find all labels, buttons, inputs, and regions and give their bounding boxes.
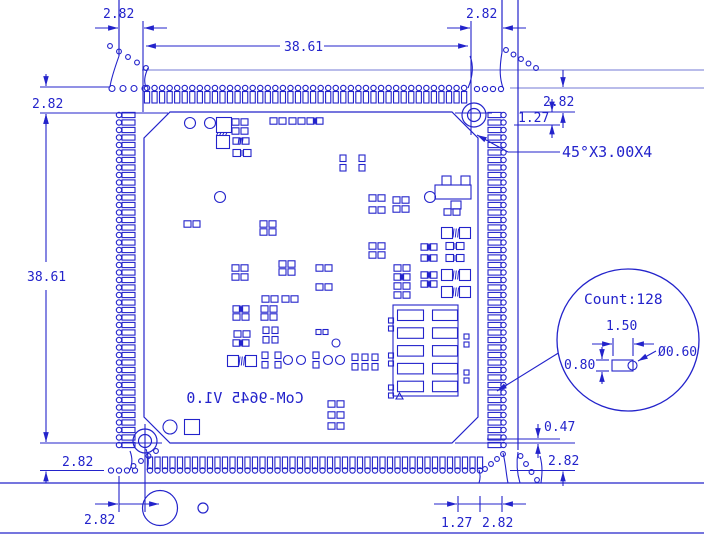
dim-top-left-offset: 2.82 bbox=[95, 7, 167, 112]
component-p bbox=[261, 314, 277, 320]
component-c bbox=[185, 118, 196, 129]
component-p bbox=[234, 331, 250, 337]
svg-text:1.27: 1.27 bbox=[441, 516, 472, 531]
svg-text:2.82: 2.82 bbox=[62, 455, 93, 470]
component-sq bbox=[217, 118, 232, 133]
component-p bbox=[232, 265, 248, 271]
component-pm bbox=[421, 244, 437, 250]
detail-bubble: Count:128 1.50 0.80 Ø0.60 bbox=[497, 269, 699, 411]
component-pv bbox=[275, 352, 281, 368]
component-pv bbox=[340, 155, 346, 171]
component-PH bbox=[442, 228, 471, 239]
board-title-text: CoM-9645 V1.0 bbox=[186, 389, 303, 407]
component-pv bbox=[362, 354, 368, 370]
component-pv bbox=[313, 352, 319, 368]
component-c bbox=[205, 118, 216, 129]
mouse-bite-row bbox=[108, 44, 149, 71]
svg-text:2.82: 2.82 bbox=[466, 7, 497, 22]
pad-row-right bbox=[488, 112, 506, 447]
component-p bbox=[316, 284, 332, 290]
component-pm bbox=[421, 281, 437, 287]
svg-text:2.82: 2.82 bbox=[84, 513, 115, 528]
svg-text:0.47: 0.47 bbox=[544, 420, 575, 435]
pad-row-top bbox=[144, 85, 467, 103]
component-PH bbox=[442, 270, 471, 281]
panel-rails-strong bbox=[0, 0, 704, 533]
component-p bbox=[328, 412, 344, 418]
component-p bbox=[316, 265, 332, 271]
component-c bbox=[324, 356, 333, 365]
component-pb bbox=[446, 243, 464, 250]
dim-bottom-pitch-and-tab: 1.27 2.82 bbox=[434, 496, 526, 531]
component-pm bbox=[233, 306, 249, 312]
component-p bbox=[233, 314, 249, 320]
component-c bbox=[163, 420, 177, 434]
svg-text:1.27: 1.27 bbox=[518, 111, 549, 126]
dimensions: 2.82 38.61 2.82 bbox=[27, 7, 652, 531]
component-p bbox=[394, 283, 410, 289]
component-pv bbox=[272, 327, 278, 343]
mouse-bite-row bbox=[474, 86, 503, 91]
svg-text:2.82: 2.82 bbox=[543, 95, 574, 110]
component-c bbox=[297, 356, 306, 365]
component-p bbox=[328, 423, 344, 429]
component-sq bbox=[217, 136, 230, 149]
pad-count-label: Count:128 bbox=[584, 292, 663, 308]
bubble-leader bbox=[497, 352, 560, 391]
component-p bbox=[232, 274, 248, 280]
dim-left-top-offset: 2.82 bbox=[32, 74, 63, 126]
pad-rows bbox=[116, 85, 506, 473]
component-conn bbox=[389, 305, 470, 399]
component-pm bbox=[307, 118, 323, 124]
bubble-circle bbox=[557, 269, 699, 411]
pad-length-label: 1.50 bbox=[606, 319, 637, 334]
component-p bbox=[328, 401, 344, 407]
component-p bbox=[394, 265, 410, 271]
component-ph bbox=[233, 138, 249, 144]
mouse-bite-row bbox=[483, 452, 506, 472]
pad-row-left bbox=[116, 112, 135, 447]
svg-text:2.82: 2.82 bbox=[548, 454, 579, 469]
component-p bbox=[260, 229, 276, 235]
component-pv bbox=[263, 327, 269, 343]
component-p bbox=[260, 221, 276, 227]
component-p bbox=[289, 118, 305, 124]
tooling-hole-large bbox=[143, 491, 178, 526]
component-p bbox=[232, 119, 248, 125]
component-p bbox=[279, 269, 295, 275]
mounting-hole-top-right bbox=[462, 103, 486, 127]
component-p bbox=[261, 306, 277, 312]
tooling-hole-small bbox=[198, 503, 208, 513]
component-pv bbox=[352, 354, 358, 370]
component-p bbox=[393, 206, 409, 212]
component-c bbox=[215, 192, 226, 203]
component-sp bbox=[316, 330, 328, 335]
component-pv bbox=[372, 354, 378, 370]
mouse-bites bbox=[108, 44, 540, 483]
component-p bbox=[282, 296, 298, 302]
component-pb bbox=[446, 255, 464, 262]
component-p bbox=[232, 128, 248, 134]
component-p bbox=[270, 118, 286, 124]
component-c bbox=[425, 192, 436, 203]
components bbox=[163, 118, 471, 435]
pcb-panel-drawing: CoM-9645 V1.0 2.82 38.61 2.82 bbox=[0, 0, 704, 540]
component-pv bbox=[359, 155, 365, 171]
mouse-bite-row bbox=[518, 454, 539, 483]
component-p bbox=[394, 292, 410, 298]
component-p bbox=[369, 243, 385, 249]
component-p bbox=[369, 252, 385, 258]
svg-text:2.82: 2.82 bbox=[103, 7, 134, 22]
pad-row-bottom bbox=[147, 457, 482, 473]
svg-text:38.61: 38.61 bbox=[27, 270, 66, 285]
dim-left-bottom-offset: 2.82 bbox=[46, 455, 93, 483]
svg-text:2.82: 2.82 bbox=[32, 97, 63, 112]
component-PH bbox=[228, 356, 257, 367]
component-p bbox=[369, 195, 385, 201]
component-pv bbox=[262, 352, 268, 368]
mouse-bite-row bbox=[109, 86, 148, 92]
component-p bbox=[262, 296, 278, 302]
component-x bbox=[435, 176, 471, 209]
component-c bbox=[332, 339, 340, 347]
dim-left-span: 38.61 bbox=[27, 114, 66, 442]
component-sq bbox=[185, 420, 200, 435]
component-c bbox=[284, 356, 293, 365]
panel-rails bbox=[142, 70, 704, 88]
svg-text:45°X3.00X4: 45°X3.00X4 bbox=[562, 143, 652, 161]
component-pm bbox=[421, 255, 437, 261]
drawing-canvas: CoM-9645 V1.0 2.82 38.61 2.82 bbox=[0, 0, 704, 540]
component-p bbox=[279, 261, 295, 267]
component-p bbox=[369, 207, 385, 213]
board-title-mirrored: CoM-9645 V1.0 bbox=[186, 389, 303, 407]
component-p bbox=[184, 221, 200, 227]
component-PH bbox=[442, 287, 471, 298]
svg-text:38.61: 38.61 bbox=[284, 40, 323, 55]
component-pm bbox=[233, 340, 249, 346]
component-pm bbox=[394, 274, 410, 280]
component-c bbox=[336, 356, 345, 365]
component-p bbox=[444, 209, 460, 215]
hole-diameter-label: Ø0.60 bbox=[658, 345, 697, 360]
pad-width-label: 0.80 bbox=[564, 358, 595, 373]
component-p bbox=[393, 197, 409, 203]
svg-text:2.82: 2.82 bbox=[482, 516, 513, 531]
component-pm bbox=[421, 272, 437, 278]
mouse-bite-row bbox=[504, 48, 539, 71]
dim-top-right-offset: 2.82 bbox=[447, 7, 526, 28]
component-pb bbox=[233, 150, 251, 157]
